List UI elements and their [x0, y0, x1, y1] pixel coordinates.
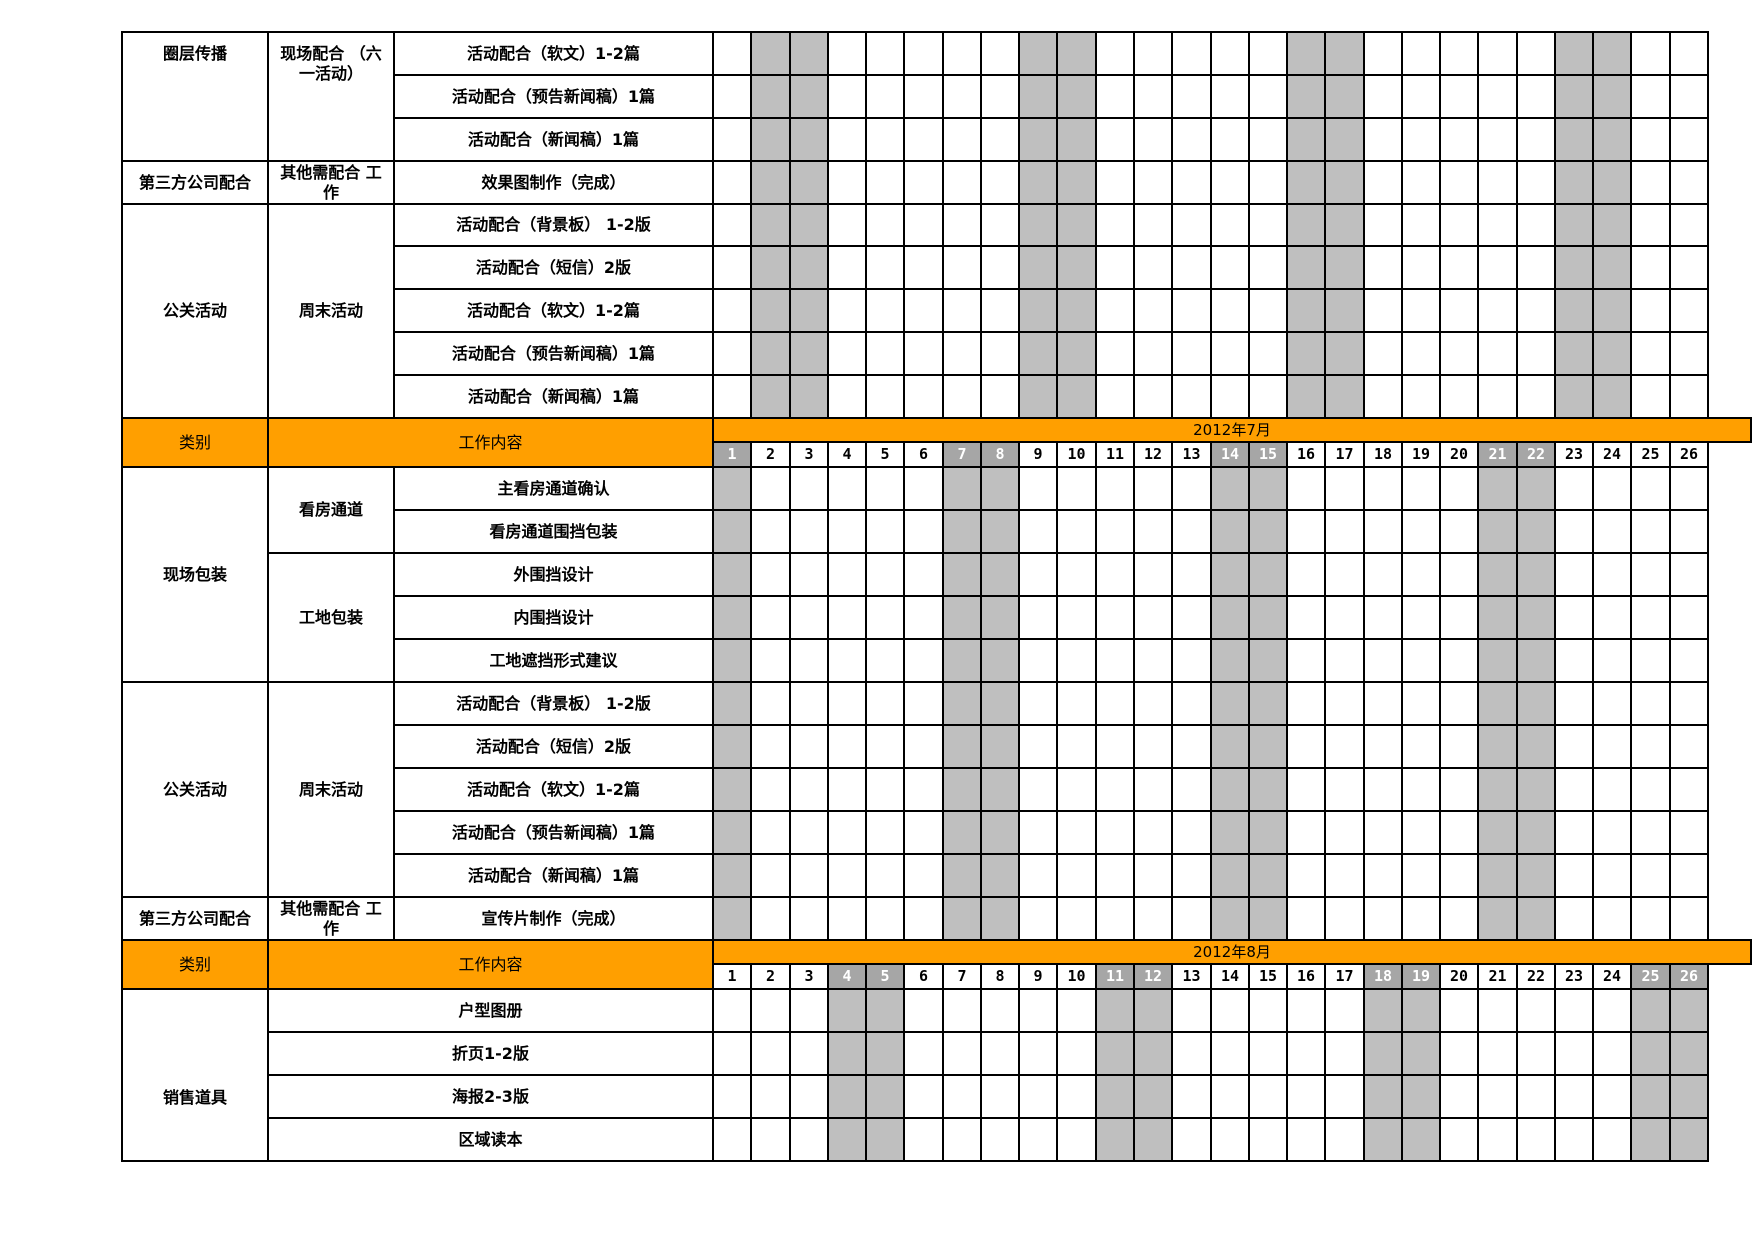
- subcategory-cell[interactable]: 周末活动: [267, 203, 395, 419]
- day-cell[interactable]: [1516, 853, 1556, 898]
- day-cell[interactable]: [1401, 681, 1441, 726]
- day-cell[interactable]: [1516, 810, 1556, 855]
- task-cell[interactable]: 活动配合（预告新闻稿）1篇: [393, 810, 714, 855]
- day-cell[interactable]: [980, 638, 1020, 683]
- day-cell[interactable]: [712, 466, 752, 511]
- day-cell[interactable]: [1401, 595, 1441, 640]
- day-cell[interactable]: [1630, 1031, 1671, 1076]
- day-number-cell[interactable]: 22: [1516, 963, 1556, 990]
- day-cell[interactable]: [1018, 117, 1058, 162]
- day-cell[interactable]: [712, 374, 752, 419]
- day-number-cell[interactable]: 10: [1056, 963, 1097, 990]
- day-cell[interactable]: [1210, 288, 1250, 333]
- day-cell[interactable]: [865, 896, 905, 941]
- day-cell[interactable]: [903, 203, 944, 247]
- day-cell[interactable]: [980, 724, 1020, 769]
- day-cell[interactable]: [1630, 1117, 1671, 1162]
- day-cell[interactable]: [1095, 896, 1135, 941]
- day-cell[interactable]: [712, 331, 752, 376]
- day-cell[interactable]: [1401, 638, 1441, 683]
- day-cell[interactable]: [1056, 853, 1097, 898]
- day-cell[interactable]: [1477, 1117, 1518, 1162]
- task-cell[interactable]: 活动配合（软文）1-2篇: [393, 767, 714, 812]
- day-cell[interactable]: [1248, 374, 1288, 419]
- day-cell[interactable]: [1669, 896, 1709, 941]
- day-cell[interactable]: [712, 810, 752, 855]
- day-cell[interactable]: [750, 681, 791, 726]
- day-cell[interactable]: [789, 988, 829, 1033]
- day-cell[interactable]: [1210, 724, 1250, 769]
- day-cell[interactable]: [1592, 810, 1632, 855]
- day-cell[interactable]: [1363, 374, 1403, 419]
- day-cell[interactable]: [1401, 203, 1441, 247]
- day-cell[interactable]: [1095, 1074, 1135, 1119]
- task-cell[interactable]: 活动配合（新闻稿）1篇: [393, 374, 714, 419]
- day-number-cell[interactable]: 16: [1286, 963, 1326, 990]
- day-cell[interactable]: [1554, 853, 1594, 898]
- day-cell[interactable]: [942, 1031, 982, 1076]
- day-cell[interactable]: [1286, 203, 1326, 247]
- day-cell[interactable]: [1363, 896, 1403, 941]
- day-number-cell[interactable]: 8: [980, 441, 1020, 468]
- day-cell[interactable]: [750, 466, 791, 511]
- day-cell[interactable]: [1516, 681, 1556, 726]
- day-cell[interactable]: [1439, 1031, 1479, 1076]
- day-cell[interactable]: [865, 552, 905, 597]
- day-number-cell[interactable]: 9: [1018, 441, 1058, 468]
- day-cell[interactable]: [1210, 160, 1250, 205]
- day-cell[interactable]: [1630, 160, 1671, 205]
- day-cell[interactable]: [1363, 331, 1403, 376]
- day-cell[interactable]: [980, 552, 1020, 597]
- day-cell[interactable]: [1363, 552, 1403, 597]
- day-cell[interactable]: [1363, 288, 1403, 333]
- day-cell[interactable]: [1210, 466, 1250, 511]
- day-cell[interactable]: [1477, 160, 1518, 205]
- day-cell[interactable]: [1210, 245, 1250, 290]
- day-cell[interactable]: [1133, 74, 1173, 119]
- day-cell[interactable]: [980, 203, 1020, 247]
- day-cell[interactable]: [1018, 724, 1058, 769]
- day-cell[interactable]: [865, 1031, 905, 1076]
- day-cell[interactable]: [1133, 466, 1173, 511]
- day-cell[interactable]: [1401, 74, 1441, 119]
- day-cell[interactable]: [980, 853, 1020, 898]
- day-cell[interactable]: [942, 767, 982, 812]
- day-cell[interactable]: [1477, 245, 1518, 290]
- day-cell[interactable]: [1516, 203, 1556, 247]
- day-cell[interactable]: [1554, 595, 1594, 640]
- day-cell[interactable]: [1401, 31, 1441, 76]
- day-cell[interactable]: [1210, 767, 1250, 812]
- task-cell[interactable]: 区域读本: [267, 1117, 714, 1162]
- day-cell[interactable]: [1248, 31, 1288, 76]
- day-cell[interactable]: [980, 160, 1020, 205]
- day-cell[interactable]: [789, 117, 829, 162]
- day-cell[interactable]: [1133, 331, 1173, 376]
- day-cell[interactable]: [1171, 288, 1212, 333]
- day-cell[interactable]: [980, 810, 1020, 855]
- day-cell[interactable]: [1554, 160, 1594, 205]
- day-number-cell[interactable]: 21: [1477, 441, 1518, 468]
- day-cell[interactable]: [865, 595, 905, 640]
- day-cell[interactable]: [980, 767, 1020, 812]
- day-cell[interactable]: [980, 117, 1020, 162]
- day-cell[interactable]: [1592, 509, 1632, 554]
- day-cell[interactable]: [1324, 638, 1365, 683]
- day-cell[interactable]: [1592, 896, 1632, 941]
- day-cell[interactable]: [1439, 1074, 1479, 1119]
- day-number-cell[interactable]: 7: [942, 441, 982, 468]
- day-cell[interactable]: [980, 466, 1020, 511]
- day-cell[interactable]: [1286, 331, 1326, 376]
- day-cell[interactable]: [903, 1031, 944, 1076]
- day-cell[interactable]: [1669, 810, 1709, 855]
- day-cell[interactable]: [1248, 203, 1288, 247]
- day-cell[interactable]: [712, 203, 752, 247]
- day-cell[interactable]: [827, 724, 867, 769]
- day-cell[interactable]: [1095, 853, 1135, 898]
- day-cell[interactable]: [1477, 810, 1518, 855]
- day-cell[interactable]: [1286, 74, 1326, 119]
- day-cell[interactable]: [865, 203, 905, 247]
- day-cell[interactable]: [1592, 853, 1632, 898]
- day-cell[interactable]: [827, 767, 867, 812]
- day-number-cell[interactable]: 4: [827, 963, 867, 990]
- day-cell[interactable]: [1439, 466, 1479, 511]
- day-cell[interactable]: [1439, 988, 1479, 1033]
- day-cell[interactable]: [1171, 331, 1212, 376]
- day-cell[interactable]: [903, 810, 944, 855]
- day-cell[interactable]: [1401, 160, 1441, 205]
- day-cell[interactable]: [1592, 117, 1632, 162]
- day-cell[interactable]: [1401, 810, 1441, 855]
- day-cell[interactable]: [1248, 245, 1288, 290]
- day-cell[interactable]: [1592, 288, 1632, 333]
- day-cell[interactable]: [1516, 724, 1556, 769]
- day-cell[interactable]: [1516, 1031, 1556, 1076]
- day-cell[interactable]: [1630, 74, 1671, 119]
- day-cell[interactable]: [1592, 203, 1632, 247]
- day-cell[interactable]: [1248, 810, 1288, 855]
- day-cell[interactable]: [1477, 331, 1518, 376]
- day-cell[interactable]: [1018, 767, 1058, 812]
- day-cell[interactable]: [1095, 724, 1135, 769]
- day-cell[interactable]: [1056, 374, 1097, 419]
- day-cell[interactable]: [1133, 1031, 1173, 1076]
- day-cell[interactable]: [1286, 767, 1326, 812]
- day-cell[interactable]: [1171, 681, 1212, 726]
- day-cell[interactable]: [1363, 767, 1403, 812]
- day-cell[interactable]: [942, 724, 982, 769]
- day-cell[interactable]: [903, 117, 944, 162]
- day-cell[interactable]: [789, 896, 829, 941]
- day-cell[interactable]: [1133, 288, 1173, 333]
- day-cell[interactable]: [942, 595, 982, 640]
- day-cell[interactable]: [789, 595, 829, 640]
- day-cell[interactable]: [1669, 117, 1709, 162]
- day-cell[interactable]: [1286, 160, 1326, 205]
- day-cell[interactable]: [865, 245, 905, 290]
- day-cell[interactable]: [942, 552, 982, 597]
- task-cell[interactable]: 活动配合（新闻稿）1篇: [393, 853, 714, 898]
- day-cell[interactable]: [1133, 595, 1173, 640]
- day-cell[interactable]: [712, 74, 752, 119]
- day-cell[interactable]: [827, 1074, 867, 1119]
- day-cell[interactable]: [1133, 160, 1173, 205]
- day-cell[interactable]: [1210, 638, 1250, 683]
- day-cell[interactable]: [1630, 853, 1671, 898]
- day-cell[interactable]: [1324, 552, 1365, 597]
- day-cell[interactable]: [1133, 31, 1173, 76]
- day-cell[interactable]: [750, 331, 791, 376]
- day-cell[interactable]: [942, 74, 982, 119]
- day-cell[interactable]: [827, 595, 867, 640]
- day-cell[interactable]: [1133, 767, 1173, 812]
- day-cell[interactable]: [789, 466, 829, 511]
- day-cell[interactable]: [1630, 595, 1671, 640]
- day-cell[interactable]: [1286, 288, 1326, 333]
- day-cell[interactable]: [1477, 595, 1518, 640]
- day-cell[interactable]: [980, 374, 1020, 419]
- day-cell[interactable]: [1286, 1117, 1326, 1162]
- day-cell[interactable]: [1018, 810, 1058, 855]
- day-cell[interactable]: [827, 681, 867, 726]
- day-cell[interactable]: [1363, 988, 1403, 1033]
- day-cell[interactable]: [1439, 853, 1479, 898]
- day-cell[interactable]: [827, 74, 867, 119]
- day-cell[interactable]: [1516, 509, 1556, 554]
- day-cell[interactable]: [1095, 288, 1135, 333]
- day-cell[interactable]: [1018, 988, 1058, 1033]
- day-cell[interactable]: [942, 117, 982, 162]
- day-number-cell[interactable]: 17: [1324, 963, 1365, 990]
- day-cell[interactable]: [1095, 1117, 1135, 1162]
- day-cell[interactable]: [1286, 245, 1326, 290]
- day-cell[interactable]: [1439, 203, 1479, 247]
- day-cell[interactable]: [1171, 203, 1212, 247]
- day-cell[interactable]: [1554, 1074, 1594, 1119]
- day-cell[interactable]: [1324, 724, 1365, 769]
- day-cell[interactable]: [1592, 74, 1632, 119]
- day-cell[interactable]: [1133, 117, 1173, 162]
- day-cell[interactable]: [827, 331, 867, 376]
- day-cell[interactable]: [1630, 1074, 1671, 1119]
- day-cell[interactable]: [1669, 1074, 1709, 1119]
- day-cell[interactable]: [1324, 1117, 1365, 1162]
- day-cell[interactable]: [903, 1074, 944, 1119]
- day-number-cell[interactable]: 9: [1018, 963, 1058, 990]
- day-cell[interactable]: [1056, 1031, 1097, 1076]
- day-number-cell[interactable]: 18: [1363, 963, 1403, 990]
- day-cell[interactable]: [1095, 117, 1135, 162]
- day-cell[interactable]: [1171, 638, 1212, 683]
- category-cell[interactable]: 公关活动: [121, 681, 269, 898]
- day-cell[interactable]: [1630, 810, 1671, 855]
- day-cell[interactable]: [1516, 374, 1556, 419]
- day-cell[interactable]: [942, 638, 982, 683]
- day-cell[interactable]: [750, 1074, 791, 1119]
- day-cell[interactable]: [1018, 638, 1058, 683]
- header-content-cell[interactable]: 工作内容: [267, 417, 714, 468]
- day-number-cell[interactable]: 6: [903, 441, 944, 468]
- day-cell[interactable]: [827, 245, 867, 290]
- day-cell[interactable]: [1439, 724, 1479, 769]
- day-number-cell[interactable]: 7: [942, 963, 982, 990]
- day-cell[interactable]: [1210, 595, 1250, 640]
- day-cell[interactable]: [1363, 681, 1403, 726]
- day-cell[interactable]: [865, 117, 905, 162]
- day-cell[interactable]: [1554, 767, 1594, 812]
- day-cell[interactable]: [1210, 1117, 1250, 1162]
- day-cell[interactable]: [1324, 595, 1365, 640]
- day-cell[interactable]: [1592, 595, 1632, 640]
- day-cell[interactable]: [1324, 288, 1365, 333]
- day-cell[interactable]: [1669, 853, 1709, 898]
- day-cell[interactable]: [1286, 117, 1326, 162]
- day-cell[interactable]: [1133, 638, 1173, 683]
- day-cell[interactable]: [1324, 810, 1365, 855]
- day-cell[interactable]: [1439, 160, 1479, 205]
- day-cell[interactable]: [1056, 203, 1097, 247]
- day-cell[interactable]: [903, 374, 944, 419]
- day-cell[interactable]: [1401, 374, 1441, 419]
- day-cell[interactable]: [1554, 117, 1594, 162]
- day-number-cell[interactable]: 10: [1056, 441, 1097, 468]
- day-cell[interactable]: [1630, 331, 1671, 376]
- day-cell[interactable]: [1324, 31, 1365, 76]
- day-cell[interactable]: [1095, 810, 1135, 855]
- day-cell[interactable]: [1401, 288, 1441, 333]
- day-cell[interactable]: [1171, 896, 1212, 941]
- day-cell[interactable]: [980, 288, 1020, 333]
- day-cell[interactable]: [942, 1074, 982, 1119]
- day-cell[interactable]: [789, 203, 829, 247]
- day-cell[interactable]: [1477, 1031, 1518, 1076]
- day-cell[interactable]: [865, 31, 905, 76]
- category-cell[interactable]: 第三方公司配合: [121, 896, 269, 941]
- day-cell[interactable]: [1669, 595, 1709, 640]
- day-cell[interactable]: [712, 1074, 752, 1119]
- day-number-cell[interactable]: 16: [1286, 441, 1326, 468]
- day-cell[interactable]: [1554, 1031, 1594, 1076]
- task-cell[interactable]: 活动配合（软文）1-2篇: [393, 31, 714, 76]
- day-number-cell[interactable]: 11: [1095, 963, 1135, 990]
- day-cell[interactable]: [1630, 638, 1671, 683]
- day-cell[interactable]: [712, 1117, 752, 1162]
- day-cell[interactable]: [1363, 853, 1403, 898]
- day-cell[interactable]: [1210, 374, 1250, 419]
- day-cell[interactable]: [1669, 552, 1709, 597]
- day-cell[interactable]: [1401, 552, 1441, 597]
- day-cell[interactable]: [942, 160, 982, 205]
- day-cell[interactable]: [1324, 374, 1365, 419]
- day-cell[interactable]: [1095, 203, 1135, 247]
- subcategory-cell[interactable]: 现场配合 （六一活动）: [267, 31, 395, 162]
- day-cell[interactable]: [1592, 1117, 1632, 1162]
- day-cell[interactable]: [865, 466, 905, 511]
- day-cell[interactable]: [1439, 638, 1479, 683]
- day-cell[interactable]: [865, 509, 905, 554]
- day-cell[interactable]: [1095, 1031, 1135, 1076]
- day-cell[interactable]: [980, 331, 1020, 376]
- day-cell[interactable]: [750, 853, 791, 898]
- day-cell[interactable]: [865, 638, 905, 683]
- day-cell[interactable]: [712, 896, 752, 941]
- day-cell[interactable]: [942, 896, 982, 941]
- day-cell[interactable]: [827, 374, 867, 419]
- day-cell[interactable]: [1401, 724, 1441, 769]
- day-cell[interactable]: [1133, 374, 1173, 419]
- day-cell[interactable]: [1363, 638, 1403, 683]
- category-cell[interactable]: 销售道具: [121, 988, 269, 1162]
- day-cell[interactable]: [1324, 1074, 1365, 1119]
- day-cell[interactable]: [1630, 117, 1671, 162]
- day-cell[interactable]: [1516, 767, 1556, 812]
- day-cell[interactable]: [1554, 245, 1594, 290]
- day-number-cell[interactable]: 22: [1516, 441, 1556, 468]
- day-cell[interactable]: [1018, 1117, 1058, 1162]
- day-cell[interactable]: [1439, 509, 1479, 554]
- day-cell[interactable]: [789, 74, 829, 119]
- day-cell[interactable]: [1210, 74, 1250, 119]
- day-cell[interactable]: [712, 117, 752, 162]
- day-cell[interactable]: [1669, 638, 1709, 683]
- day-cell[interactable]: [942, 374, 982, 419]
- day-cell[interactable]: [1324, 117, 1365, 162]
- day-cell[interactable]: [1554, 552, 1594, 597]
- day-cell[interactable]: [865, 853, 905, 898]
- day-cell[interactable]: [1516, 896, 1556, 941]
- day-cell[interactable]: [865, 288, 905, 333]
- day-cell[interactable]: [1210, 810, 1250, 855]
- day-cell[interactable]: [1018, 31, 1058, 76]
- day-cell[interactable]: [750, 509, 791, 554]
- day-cell[interactable]: [1592, 552, 1632, 597]
- day-cell[interactable]: [865, 374, 905, 419]
- day-cell[interactable]: [1286, 595, 1326, 640]
- day-cell[interactable]: [865, 160, 905, 205]
- day-number-cell[interactable]: 13: [1171, 963, 1212, 990]
- task-cell[interactable]: 效果图制作（完成）: [393, 160, 714, 205]
- day-cell[interactable]: [1324, 1031, 1365, 1076]
- day-cell[interactable]: [903, 681, 944, 726]
- day-cell[interactable]: [1516, 466, 1556, 511]
- day-cell[interactable]: [1516, 1117, 1556, 1162]
- day-cell[interactable]: [1056, 552, 1097, 597]
- day-cell[interactable]: [750, 595, 791, 640]
- day-cell[interactable]: [1669, 988, 1709, 1033]
- day-cell[interactable]: [1439, 331, 1479, 376]
- day-cell[interactable]: [1248, 853, 1288, 898]
- day-cell[interactable]: [903, 896, 944, 941]
- day-cell[interactable]: [712, 1031, 752, 1076]
- day-cell[interactable]: [827, 509, 867, 554]
- day-cell[interactable]: [1286, 466, 1326, 511]
- day-number-cell[interactable]: 3: [789, 441, 829, 468]
- day-cell[interactable]: [1056, 288, 1097, 333]
- day-cell[interactable]: [865, 681, 905, 726]
- day-cell[interactable]: [1516, 331, 1556, 376]
- day-cell[interactable]: [1324, 203, 1365, 247]
- day-cell[interactable]: [1630, 509, 1671, 554]
- day-cell[interactable]: [1210, 1031, 1250, 1076]
- day-number-cell[interactable]: 25: [1630, 963, 1671, 990]
- day-cell[interactable]: [1248, 1074, 1288, 1119]
- day-cell[interactable]: [712, 853, 752, 898]
- day-cell[interactable]: [1286, 896, 1326, 941]
- day-cell[interactable]: [1018, 466, 1058, 511]
